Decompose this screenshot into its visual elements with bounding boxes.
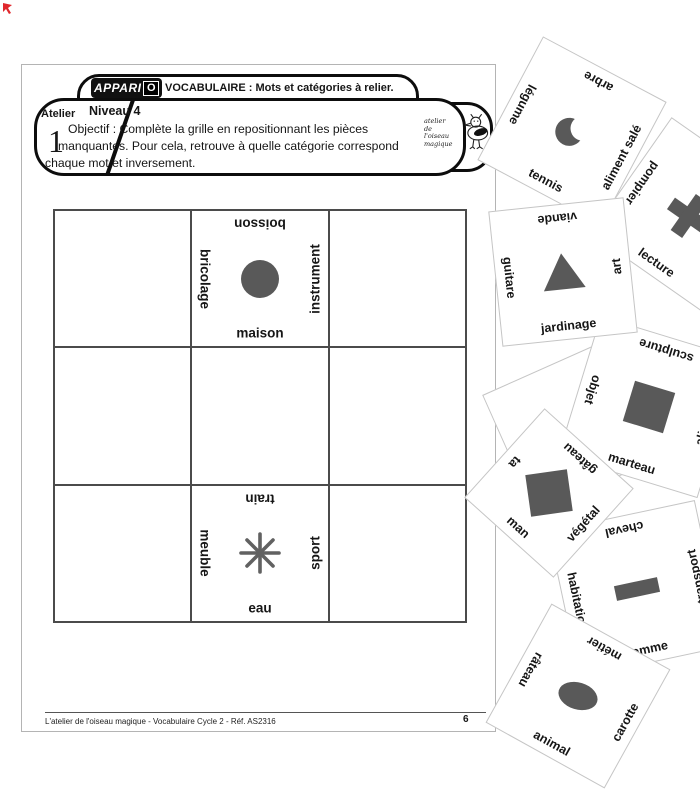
grid-cell-empty	[54, 485, 191, 622]
appario-logo: APPARI O	[91, 78, 162, 98]
circle-icon	[241, 260, 279, 298]
card-word-bottom: jardinage	[540, 316, 597, 336]
card-word-top: cheval	[604, 518, 645, 540]
grid-cell-empty	[54, 347, 191, 484]
card-word-left: guitare	[500, 256, 518, 299]
piece-word-bottom: maison	[236, 326, 283, 341]
objective-line: Objectif : Complète la grille en reposit…	[68, 122, 368, 136]
card-word-top: viande	[537, 209, 578, 227]
grid-cell-empty	[54, 210, 191, 347]
piece-word-right: sport	[307, 536, 322, 570]
grid-cell-piece: train meuble sport eau	[191, 485, 328, 622]
card-word-left: ta	[506, 453, 524, 471]
crescent-icon	[550, 109, 593, 152]
card-word-right: aliment	[692, 401, 700, 447]
grid-cell-empty	[191, 347, 328, 484]
grid-cell-empty	[329, 485, 466, 622]
level-label: Niveau 4	[89, 104, 140, 118]
piece-word-bottom: eau	[248, 600, 271, 615]
triangle-icon	[540, 251, 586, 291]
asterisk-icon	[237, 530, 283, 576]
piece-word-left: meuble	[198, 530, 213, 577]
worksheet-page: APPARI O VOCABULAIRE : Mots et catégorie…	[21, 64, 496, 732]
card-word-left: râteau	[516, 650, 546, 690]
grid-cell-empty	[329, 347, 466, 484]
screenshot-root: APPARI O VOCABULAIRE : Mots et catégorie…	[0, 0, 700, 800]
footer-divider	[45, 712, 486, 713]
objective-line: manquantes. Pour cela, retrouve à quelle…	[58, 139, 399, 153]
card-word-top: sculpture	[637, 336, 695, 366]
card-word-left: lecture	[635, 245, 677, 280]
card-word-top: arbre	[581, 68, 615, 95]
grid-cell-empty	[329, 210, 466, 347]
red-arrow-icon	[2, 2, 15, 15]
grid-cell-piece: boisson bricolage instrument maison	[191, 210, 328, 347]
vocab-card-triangle: viande guitare art jardinage	[488, 197, 637, 346]
square-icon	[623, 381, 675, 433]
card-word-bottom: tennis	[526, 166, 565, 196]
card-word-right: transport	[684, 548, 700, 605]
ellipse-icon	[555, 677, 601, 715]
cross-icon	[658, 185, 700, 246]
footer-caption: L'atelier de l'oiseau magique - Vocabula…	[45, 717, 276, 726]
worksheet-title: VOCABULAIRE : Mots et catégories à relie…	[165, 82, 394, 94]
objective-line: chaque mot et inversement.	[45, 156, 195, 170]
answer-grid: boisson bricolage instrument maison trai…	[53, 209, 467, 623]
card-word-right: carotte	[609, 701, 641, 744]
piece-word-left: bricolage	[198, 249, 213, 309]
appario-logo-badge: O	[143, 81, 159, 96]
publisher-logo-text: atelier de l'oiseau magique	[424, 109, 452, 167]
square-icon	[525, 469, 572, 516]
piece-word-top: boisson	[234, 217, 286, 232]
piece-word-top: train	[245, 491, 274, 506]
rectangle-icon	[614, 577, 660, 601]
card-word-bottom: animal	[531, 728, 572, 759]
page-number: 6	[463, 714, 469, 725]
piece-word-right: instrument	[307, 244, 322, 314]
atelier-label: Atelier	[41, 108, 75, 120]
appario-logo-text: APPARI	[94, 81, 141, 95]
card-word-bottom: man	[504, 513, 532, 541]
card-word-left: légume	[506, 82, 539, 127]
card-word-left: objet	[582, 373, 604, 406]
card-word-right: art	[609, 258, 625, 275]
